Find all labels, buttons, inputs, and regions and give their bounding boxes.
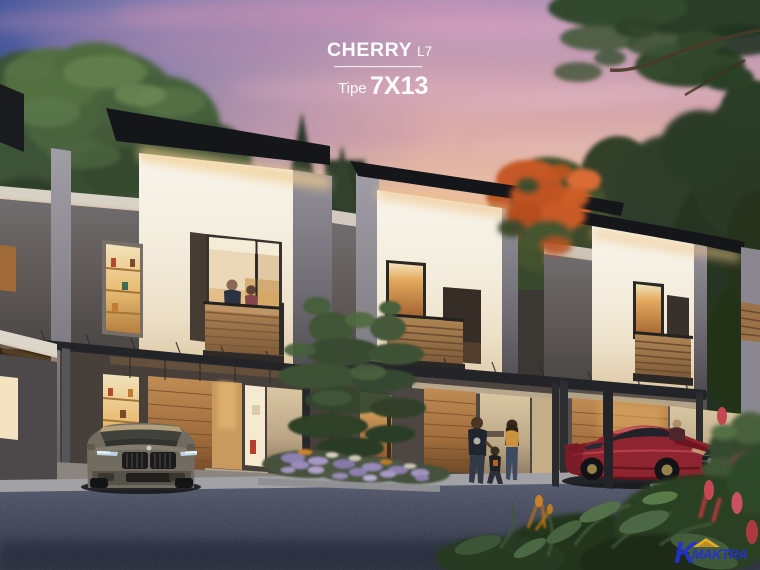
svg-text:L7: L7 <box>417 44 432 59</box>
svg-text:7X13: 7X13 <box>370 72 428 100</box>
svg-text:MAKTRA: MAKTRA <box>692 547 748 562</box>
svg-text:CHERRY: CHERRY <box>327 39 412 61</box>
svg-text:Tipe: Tipe <box>338 80 367 97</box>
